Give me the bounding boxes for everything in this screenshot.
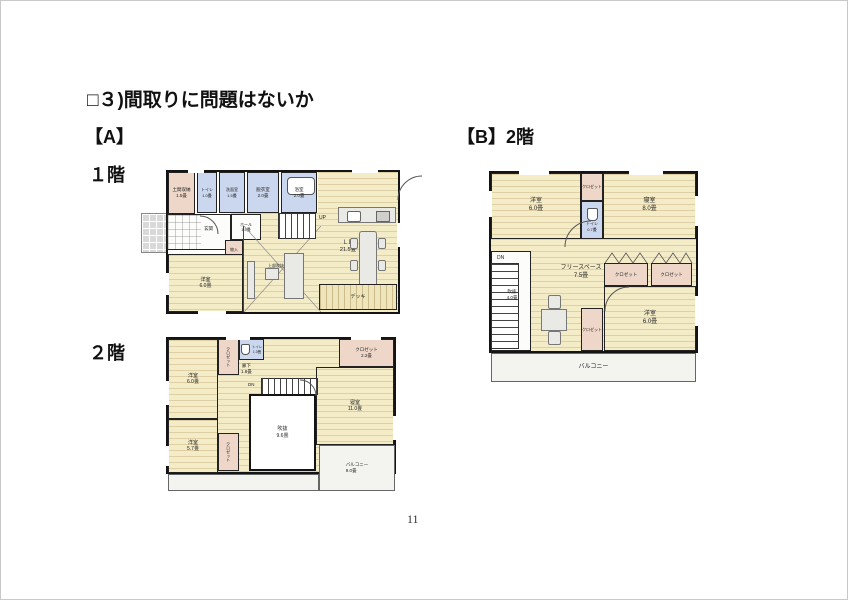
room-label: トイレ 1.0畳 bbox=[252, 345, 263, 354]
room-toilet: トイレ 1.0畳 bbox=[197, 172, 217, 213]
room-closet: クロゼット bbox=[218, 433, 239, 471]
chair bbox=[548, 295, 561, 309]
room-label: クロゼット bbox=[615, 272, 638, 278]
dn-label: DN bbox=[497, 255, 504, 262]
window bbox=[226, 336, 250, 340]
room-bath: 浴室 2.0畳 bbox=[281, 172, 317, 213]
window bbox=[166, 381, 169, 405]
room-toilet-2f: トイレ 1.0畳 bbox=[239, 339, 264, 360]
room-label: バルコニー bbox=[579, 364, 609, 372]
room-label: クロゼット bbox=[582, 184, 602, 189]
genkan-tile bbox=[168, 215, 201, 249]
room-label: 洋室 6.0畳 bbox=[187, 373, 199, 386]
plan-a-floor1: 土間収納 1.5畳 トイレ 1.0畳 洗面室 1.5畳 脱衣室 2.0畳 浴室 … bbox=[138, 168, 428, 320]
room-label: 洗面室 1.5畳 bbox=[226, 187, 238, 197]
room-toilet-b: トイレ 0.7畳 bbox=[581, 201, 603, 239]
room-label: 洋室 6.0畳 bbox=[529, 198, 543, 214]
room-closet-e2: クロゼット bbox=[651, 263, 692, 286]
room-shinshitsu: 寝室 11.0畳 bbox=[316, 367, 394, 445]
room-label: 洋室 5.7畳 bbox=[187, 440, 199, 453]
window bbox=[629, 171, 663, 175]
coffee-table bbox=[265, 268, 279, 280]
page-number: 11 bbox=[407, 512, 419, 527]
room-label: バルコニー 9.0畳 bbox=[346, 462, 368, 474]
room-doma-storage: 土間収納 1.5畳 bbox=[168, 172, 195, 214]
genkan-label: 玄関 bbox=[204, 226, 213, 232]
room-label: クロゼット bbox=[226, 442, 231, 462]
window bbox=[695, 196, 698, 226]
document-page: □３)間取りに問題はないか 【A】 【B】2階 １階 ２階 土間収納 1.5畳 … bbox=[0, 0, 848, 600]
atrium-void: 吹抜 9.6畳 bbox=[249, 394, 316, 471]
toilet-icon bbox=[587, 208, 598, 221]
chair bbox=[350, 238, 358, 249]
dining-table bbox=[359, 231, 377, 287]
window bbox=[695, 296, 698, 326]
window bbox=[519, 171, 549, 175]
plan-a-label: 【A】 bbox=[85, 123, 134, 149]
room-label: 脱衣室 2.0畳 bbox=[256, 187, 270, 199]
room-yoshitsu2-2f: 洋室 5.7畳 bbox=[168, 419, 218, 473]
window bbox=[393, 416, 396, 440]
room-washroom: 洗面室 1.5畳 bbox=[219, 172, 245, 213]
void-label: 吹抜 4.0畳 bbox=[497, 289, 527, 301]
sink-icon bbox=[347, 211, 361, 222]
toilet-icon bbox=[241, 344, 250, 355]
window bbox=[351, 336, 381, 340]
chair bbox=[378, 260, 386, 271]
room-label: 吹抜 9.6畳 bbox=[277, 426, 289, 439]
plan-a-floor1-label: １階 bbox=[89, 161, 125, 187]
stairs-down bbox=[261, 378, 318, 395]
tv-board bbox=[247, 261, 255, 299]
window bbox=[166, 446, 169, 466]
hallway-label: 廊下 1.8畳 bbox=[241, 363, 252, 375]
room-label: クロゼット bbox=[582, 327, 602, 332]
stove-icon bbox=[376, 211, 390, 222]
balcony-a2-strip bbox=[168, 474, 319, 491]
page-title: □３)間取りに問題はないか bbox=[87, 85, 314, 112]
room-label: トイレ 1.0畳 bbox=[201, 187, 213, 197]
sofa bbox=[284, 253, 304, 299]
stairs-down-b bbox=[491, 263, 519, 349]
room-label: トイレ 0.7畳 bbox=[586, 221, 598, 231]
room-label: 物入 bbox=[230, 247, 238, 252]
plan-b-floor2: 洋室 6.0畳 クロゼット トイレ 0.7畳 寝室 8.0畳 DN 吹抜 4.0… bbox=[489, 171, 703, 387]
room-closet-n: クロゼット bbox=[581, 173, 603, 201]
room-dressing: 脱衣室 2.0畳 bbox=[247, 172, 279, 213]
room-label: 寝室 11.0畳 bbox=[348, 400, 362, 413]
room-label: 寝室 8.0畳 bbox=[642, 198, 656, 214]
chair bbox=[548, 331, 561, 345]
front-door-arc bbox=[396, 174, 424, 202]
deck: デッキ bbox=[319, 284, 397, 310]
room-yoshitsu-se: 洋室 6.0畳 bbox=[604, 286, 696, 351]
room-yoshitsu1-2f: 洋室 6.0畳 bbox=[168, 339, 218, 419]
desk bbox=[541, 309, 567, 331]
chair bbox=[350, 260, 358, 271]
window bbox=[489, 191, 492, 217]
window bbox=[188, 169, 204, 173]
room-label: 洋室 6.0畳 bbox=[200, 277, 212, 290]
window bbox=[198, 311, 226, 315]
room-yoshitsu-nw: 洋室 6.0畳 bbox=[491, 173, 581, 239]
up-label: UP bbox=[319, 215, 326, 222]
room-shinshitsu-b: 寝室 8.0畳 bbox=[603, 173, 696, 239]
dn-label: DN bbox=[248, 382, 255, 388]
room-label: クロゼット 2.2畳 bbox=[355, 347, 378, 359]
room-label: クロゼット bbox=[226, 347, 231, 367]
kitchen-counter bbox=[338, 207, 396, 223]
room-closet-e1: クロゼット bbox=[604, 263, 648, 286]
window bbox=[352, 169, 378, 173]
chair bbox=[378, 238, 386, 249]
window bbox=[397, 223, 401, 247]
plan-a-floor2: 洋室 6.0畳 クロゼット トイレ 1.0畳 廊下 1.8畳 クロゼット 2.2… bbox=[166, 336, 401, 496]
plan-b-label: 【B】2階 bbox=[457, 123, 534, 149]
room-label: 浴室 2.0畳 bbox=[294, 187, 305, 199]
window bbox=[165, 273, 169, 295]
room-yoshitsu-1f: 洋室 6.0畳 bbox=[168, 254, 243, 312]
balcony-b: バルコニー bbox=[491, 353, 696, 382]
room-label: デッキ bbox=[350, 294, 365, 301]
room-closet-s: クロゼット bbox=[581, 308, 603, 351]
room-closet-22: クロゼット 2.2畳 bbox=[339, 339, 394, 367]
stairs-up bbox=[278, 213, 316, 239]
room-closet: クロゼット bbox=[218, 339, 239, 375]
room-label: クロゼット bbox=[660, 272, 683, 278]
plan-a-floor2-label: ２階 bbox=[89, 339, 125, 365]
balcony-a2: バルコニー 9.0畳 bbox=[319, 445, 395, 491]
room-label: 洋室 6.0畳 bbox=[643, 311, 657, 327]
room-label: 土間収納 1.5畳 bbox=[173, 187, 191, 199]
